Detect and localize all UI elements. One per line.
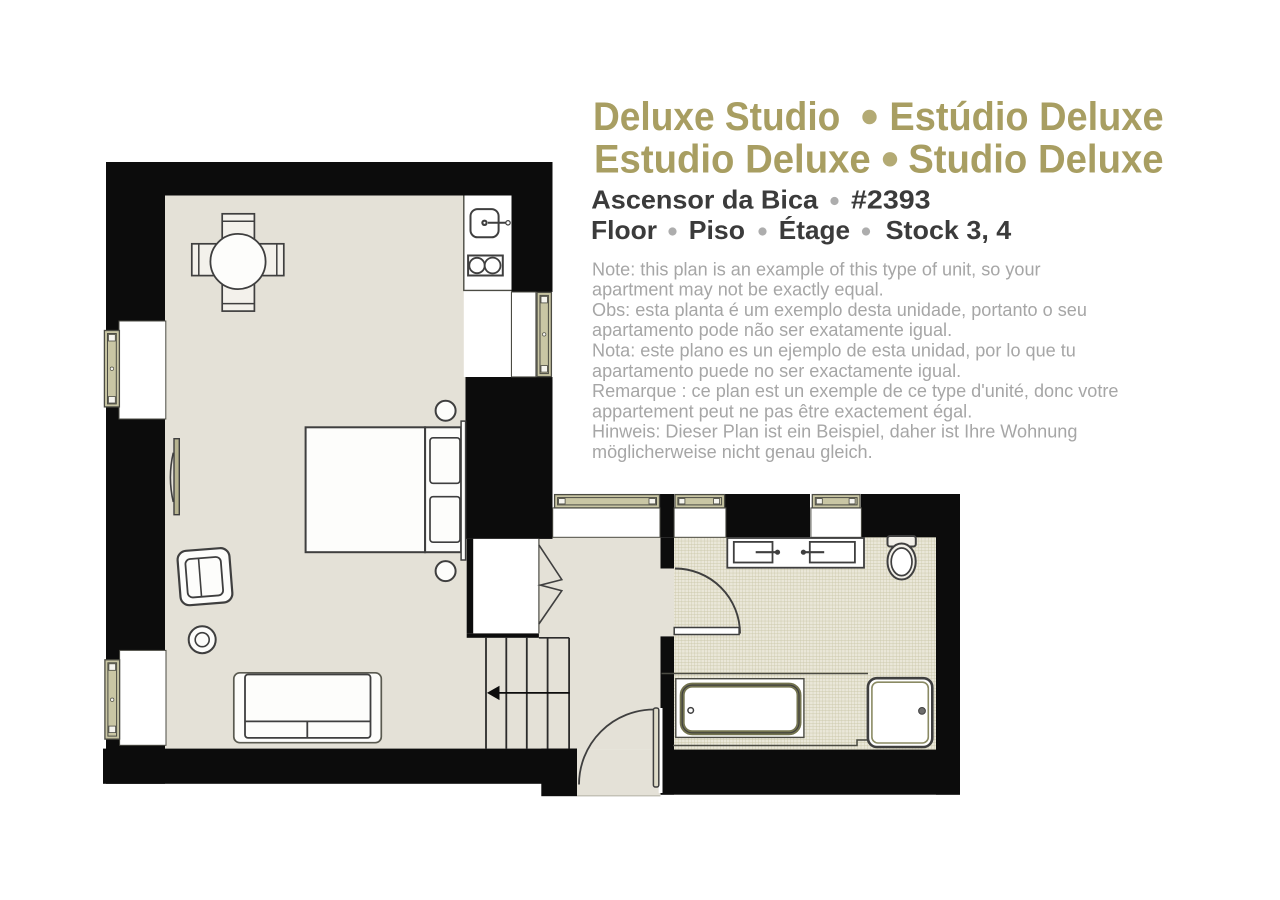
svg-text:Deluxe Studio: Deluxe Studio <box>593 95 840 139</box>
svg-text:Ascensor da Bica: Ascensor da Bica <box>591 185 818 215</box>
svg-text:Étage: Étage <box>779 215 850 245</box>
svg-text:Stock 3, 4: Stock 3, 4 <box>886 215 1012 245</box>
svg-text:apartamento pode não ser exata: apartamento pode não ser exatamente igua… <box>592 320 952 340</box>
svg-text:Remarque : ce plan est un exem: Remarque : ce plan est un exemple de ce … <box>592 381 1118 401</box>
svg-text:apartment may not be exactly e: apartment may not be exactly equal. <box>592 280 884 300</box>
svg-text:Estudio Deluxe: Estudio Deluxe <box>594 137 871 181</box>
svg-text:Floor: Floor <box>591 215 657 245</box>
svg-text:appartement peut ne pas être e: appartement peut ne pas être exactement … <box>592 401 972 421</box>
svg-text:#2393: #2393 <box>851 185 931 215</box>
svg-text:Hinweis: Dieser Plan ist ein B: Hinweis: Dieser Plan ist ein Beispiel, d… <box>592 422 1077 442</box>
svg-text:Nota: este plano es un ejemplo: Nota: este plano es un ejemplo de esta u… <box>592 341 1076 361</box>
svg-text:Obs: esta planta é um exemplo: Obs: esta planta é um exemplo desta unid… <box>592 300 1087 320</box>
svg-text:apartamento puede no ser exact: apartamento puede no ser exactamente igu… <box>592 361 961 381</box>
svg-text:Note: this plan is an example: Note: this plan is an example of this ty… <box>592 259 1041 279</box>
svg-text:möglicherweise nicht genau gle: möglicherweise nicht genau gleich. <box>592 442 873 462</box>
svg-text:Estúdio Deluxe: Estúdio Deluxe <box>889 95 1163 139</box>
svg-text:Piso: Piso <box>689 215 745 245</box>
svg-text:Studio Deluxe: Studio Deluxe <box>908 137 1163 181</box>
